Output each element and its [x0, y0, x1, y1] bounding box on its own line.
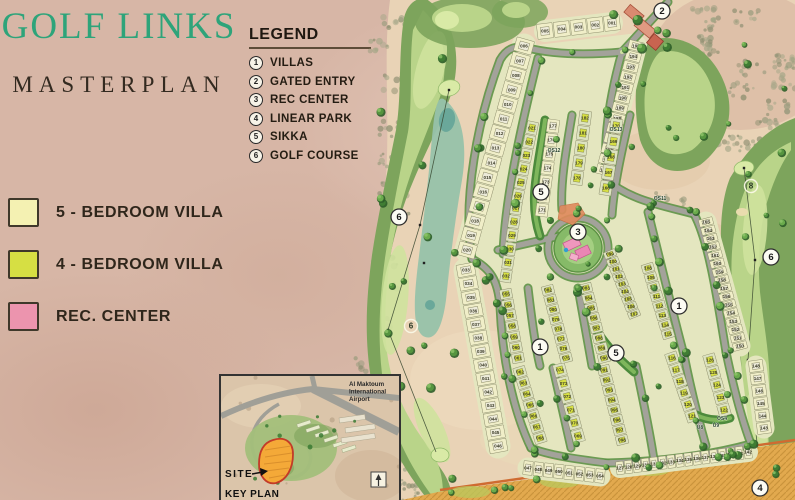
plot-number: 025 — [517, 180, 525, 185]
plot-number: 006 — [520, 44, 528, 49]
legend-item-label: SIKKA — [270, 131, 308, 143]
compass-icon — [371, 472, 386, 487]
plot-number: 151 — [734, 335, 742, 340]
plot-number: 044 — [489, 417, 497, 422]
plot-number: 051 — [565, 470, 573, 475]
plot-number: 115 — [664, 332, 672, 337]
plot-number: 081 — [547, 297, 555, 302]
plot-number: 013 — [492, 146, 500, 151]
plot-number: 040 — [479, 362, 487, 367]
plot-number: 068 — [536, 436, 544, 441]
plot-number: 014 — [488, 160, 496, 165]
plot-number: 136 — [693, 456, 701, 461]
plot-number: 079 — [552, 317, 560, 322]
key-row-4-bedroom-villa: 4 - BEDROOM VILLA — [8, 250, 224, 279]
masterplan-map: 0050040030020010060070080090100110120130… — [345, 0, 795, 500]
plot-number: 113 — [659, 313, 667, 318]
map-marker-4: 4 — [752, 480, 768, 496]
plot-number: 029 — [508, 233, 516, 238]
plot-number: 087 — [592, 326, 600, 331]
legend-number-icon: 3 — [249, 93, 263, 107]
plot-number: 041 — [482, 376, 490, 381]
open-space-label: U9 — [713, 423, 720, 429]
plot-number: 108 — [644, 266, 652, 271]
plot-number: 093 — [605, 388, 613, 393]
plot-number: 192 — [624, 75, 632, 80]
plot-number: 162 — [709, 245, 717, 250]
plot-number: 117 — [672, 367, 680, 372]
plot-number: 049 — [545, 468, 553, 473]
plot-number: 179 — [575, 161, 583, 166]
plot-number: 016 — [479, 189, 487, 194]
plot-number: 063 — [519, 381, 527, 386]
plot-number: 043 — [487, 403, 495, 408]
plot-number: 159 — [716, 269, 724, 274]
plot-number: 078 — [554, 327, 562, 332]
plot-number: 104 — [621, 289, 629, 294]
plot-number: 181 — [579, 131, 587, 136]
plot-number: 003 — [575, 25, 583, 30]
plot-number: 128 — [625, 465, 633, 470]
svg-text:5: 5 — [538, 187, 544, 198]
keyplan-title: KEY PLAN — [225, 489, 279, 500]
plot-number: 118 — [676, 379, 684, 384]
plot-number: 180 — [577, 146, 585, 151]
plot-number: 009 — [508, 87, 516, 92]
legend-number-icon: 5 — [249, 130, 263, 144]
map-marker-6: 6 — [763, 249, 779, 265]
svg-text:4: 4 — [757, 483, 763, 494]
plot-number: 054 — [596, 474, 604, 479]
svg-text:3: 3 — [575, 227, 580, 238]
plot-number: 163 — [707, 236, 715, 241]
plot-number: 037 — [472, 322, 480, 327]
plot-number: 152 — [732, 327, 740, 332]
plot-number: 177 — [549, 124, 557, 129]
plot-number: 145 — [757, 401, 765, 406]
plot-number: 065 — [526, 403, 534, 408]
color-key: 5 - BEDROOM VILLA4 - BEDROOM VILLAREC. C… — [8, 198, 224, 354]
plot-number: 026 — [514, 194, 522, 199]
plot-number: 101 — [612, 267, 620, 272]
plot-number: 182 — [581, 116, 589, 121]
plot-number: 080 — [549, 307, 557, 312]
plot-number: 156 — [723, 294, 731, 299]
plot-number: 193 — [627, 64, 635, 69]
plot-number: 190 — [619, 95, 627, 100]
legend-item-label: REC CENTER — [270, 94, 349, 106]
plot-number: 126 — [706, 358, 714, 363]
plot-number: 083 — [582, 286, 590, 291]
key-swatch-icon — [8, 250, 39, 279]
plot-number: 116 — [668, 356, 676, 361]
plot-number: 070 — [571, 421, 579, 426]
plot-number: 035 — [467, 295, 475, 300]
keyplan-airport-label: Al Maktoum — [349, 381, 385, 388]
plot-number: 018 — [471, 219, 479, 224]
plot-number: 039 — [477, 349, 485, 354]
plot-number: 082 — [544, 288, 552, 293]
plot-number: 119 — [680, 391, 688, 396]
plot-number: 178 — [573, 176, 581, 181]
svg-text:8: 8 — [749, 182, 754, 191]
plot-number: 055 — [502, 292, 510, 297]
key-label: 5 - BEDROOM VILLA — [56, 204, 224, 222]
plot-number: 137 — [701, 455, 709, 460]
map-marker-3: 3 — [570, 224, 586, 240]
plot-number: 086 — [590, 316, 598, 321]
map-marker-5: 5 — [533, 184, 549, 200]
plot-number: 061 — [514, 356, 522, 361]
plot-number: 084 — [585, 296, 593, 301]
plot-number: 057 — [506, 313, 514, 318]
plot-number: 191 — [621, 85, 629, 90]
map-marker-1: 1 — [532, 339, 548, 355]
plot-number: 021 — [528, 126, 536, 131]
plot-number: 004 — [558, 27, 566, 32]
plot-number: 005 — [541, 29, 549, 34]
plot-number: 089 — [598, 346, 606, 351]
plot-number: 123 — [717, 395, 725, 400]
plot-number: 023 — [523, 153, 531, 158]
plot-number: 095 — [610, 408, 618, 413]
plot-number: 158 — [718, 278, 726, 283]
plot-number: 094 — [608, 398, 616, 403]
key-row-5-bedroom-villa: 5 - BEDROOM VILLA — [8, 198, 224, 227]
svg-text:5: 5 — [613, 348, 619, 359]
plot-number: 114 — [661, 322, 669, 327]
key-label: REC. CENTER — [56, 308, 171, 326]
plot-number: 150 — [736, 344, 744, 349]
plot-number: 071 — [567, 407, 575, 412]
plot-number: 058 — [508, 324, 516, 329]
plot-number: 038 — [474, 335, 482, 340]
plot-number: 099 — [606, 252, 614, 257]
plot-number: 146 — [755, 389, 763, 394]
svg-text:1: 1 — [537, 342, 543, 353]
plot-number: 154 — [727, 311, 735, 316]
svg-text:6: 6 — [768, 252, 773, 263]
plot-number: 050 — [555, 469, 563, 474]
plot-number: 157 — [720, 286, 728, 291]
plot-number: 001 — [608, 21, 616, 26]
plot-number: 147 — [754, 376, 762, 381]
open-space-label: OS4 — [717, 416, 727, 422]
plot-number: 028 — [510, 219, 518, 224]
map-marker-6: 6 — [391, 209, 407, 225]
plot-number: 088 — [595, 336, 603, 341]
svg-text:6: 6 — [396, 212, 401, 223]
open-space-label: U8 — [697, 425, 704, 431]
plot-number: 100 — [609, 259, 617, 264]
legend-number-icon: 4 — [249, 112, 263, 126]
plot-number: 135 — [684, 457, 692, 462]
plot-number: 107 — [630, 312, 638, 317]
plot-number: 002 — [591, 23, 599, 28]
key-plan-map: SITEAl MaktoumInternationalAirportKEY PL… — [221, 376, 399, 500]
plot-number: 102 — [615, 274, 623, 279]
plot-number: 046 — [494, 444, 502, 449]
plot-number: 194 — [629, 54, 637, 59]
plot-number: 092 — [603, 378, 611, 383]
plot-number: 069 — [574, 434, 582, 439]
plot-number: 103 — [618, 282, 626, 287]
keyplan-airport-label: Airport — [349, 396, 370, 403]
keyplan-airport-label: International — [349, 389, 386, 396]
plot-number: 073 — [560, 381, 568, 386]
map-marker-2: 2 — [654, 3, 670, 19]
plot-number: 047 — [524, 466, 532, 471]
masterplan-page: GOLF LINKS MASTERPLAN LEGEND 1VILLAS2GAT… — [0, 0, 795, 500]
plot-number: 164 — [704, 228, 712, 233]
plot-number: 090 — [600, 356, 608, 361]
plot-number: 062 — [516, 370, 524, 375]
plot-number: 072 — [563, 394, 571, 399]
plot-number: 098 — [618, 438, 626, 443]
plot-number: 015 — [484, 175, 492, 180]
plot-number: 033 — [462, 268, 470, 273]
plot-number: 109 — [647, 275, 655, 280]
plot-number: 019 — [467, 233, 475, 238]
plot-number: 056 — [504, 302, 512, 307]
plot-number: 052 — [576, 471, 584, 476]
plot-number: 074 — [556, 368, 564, 373]
plot-number: 011 — [500, 117, 508, 122]
legend-item-label: VILLAS — [270, 57, 313, 69]
plot-number: 142 — [744, 450, 752, 455]
plot-number: 169 — [610, 139, 618, 144]
plot-number: 034 — [465, 281, 473, 286]
page-subtitle: MASTERPLAN — [0, 72, 238, 98]
open-space-label: OS12 — [548, 148, 561, 154]
legend-number-icon: 6 — [249, 149, 263, 163]
plot-number: 148 — [752, 364, 760, 369]
plot-number: 064 — [523, 392, 531, 397]
plot-number: 053 — [586, 473, 594, 478]
plot-number: 161 — [711, 253, 719, 258]
plot-number: 024 — [520, 167, 528, 172]
plot-number: 036 — [470, 308, 478, 313]
open-space-label: OS13 — [610, 127, 623, 133]
svg-text:6: 6 — [409, 322, 414, 331]
key-swatch-icon — [8, 302, 39, 331]
plot-number: 111 — [653, 294, 661, 299]
legend-item-label: GATED ENTRY — [270, 76, 356, 88]
plot-number: 153 — [729, 319, 737, 324]
plot-number: 076 — [560, 346, 568, 351]
plot-number: 048 — [534, 467, 542, 472]
plot-number: 155 — [725, 302, 733, 307]
plot-number: 008 — [512, 73, 520, 78]
plot-number: 125 — [710, 370, 718, 375]
plot-number: 143 — [760, 426, 768, 431]
plot-number: 091 — [600, 368, 608, 373]
page-title: GOLF LINKS — [0, 5, 238, 48]
plot-number: 105 — [624, 297, 632, 302]
key-row-rec-center: REC. CENTER — [8, 302, 224, 331]
svg-text:2: 2 — [659, 6, 664, 17]
plot-number: 042 — [484, 390, 492, 395]
plot-number: 167 — [605, 170, 613, 175]
legend-number-icon: 1 — [249, 56, 263, 70]
plot-number: 160 — [713, 261, 721, 266]
plot-number: 096 — [613, 418, 621, 423]
plot-number: 032 — [502, 274, 510, 279]
plot-number: 075 — [562, 356, 570, 361]
key-plan-inset: SITEAl MaktoumInternationalAirportKEY PL… — [219, 374, 401, 500]
plot-number: 020 — [463, 248, 471, 253]
plot-number: 189 — [616, 106, 624, 111]
plot-number: 007 — [516, 58, 524, 63]
legend-number-icon: 2 — [249, 75, 263, 89]
plot-number: 129 — [633, 464, 641, 469]
map-marker-5: 5 — [608, 345, 624, 361]
plot-number: 134 — [676, 458, 684, 463]
plot-number: 171 — [538, 208, 546, 213]
plot-number: 059 — [510, 334, 518, 339]
plot-number: 124 — [713, 383, 721, 388]
plot-number: 144 — [759, 413, 767, 418]
plot-number: 106 — [627, 304, 635, 309]
plot-number: 133 — [667, 459, 675, 464]
plot-number: 127 — [616, 466, 624, 471]
plot-number: 022 — [525, 139, 533, 144]
plot-number: 165 — [702, 220, 710, 225]
key-label: 4 - BEDROOM VILLA — [56, 256, 224, 274]
plot-number: 066 — [529, 414, 537, 419]
plot-number: 077 — [557, 336, 565, 341]
plot-number: 060 — [512, 345, 520, 350]
key-swatch-icon — [8, 198, 39, 227]
map-marker-1: 1 — [671, 298, 687, 314]
plot-number: 012 — [496, 131, 504, 136]
plot-number: 010 — [504, 102, 512, 107]
plot-number: 097 — [616, 428, 624, 433]
plot-number: 067 — [533, 425, 541, 430]
plot-number: 120 — [684, 402, 692, 407]
legend-item-label: LINEAR PARK — [270, 113, 352, 125]
svg-text:1: 1 — [676, 301, 682, 312]
plot-number: 122 — [720, 408, 728, 413]
plot-number: 031 — [504, 260, 512, 265]
keyplan-site-label: SITE — [225, 469, 253, 480]
plot-number: 174 — [544, 166, 552, 171]
plot-number: 045 — [492, 430, 500, 435]
plot-number: 112 — [656, 303, 664, 308]
open-space-label: OS11 — [654, 196, 667, 202]
